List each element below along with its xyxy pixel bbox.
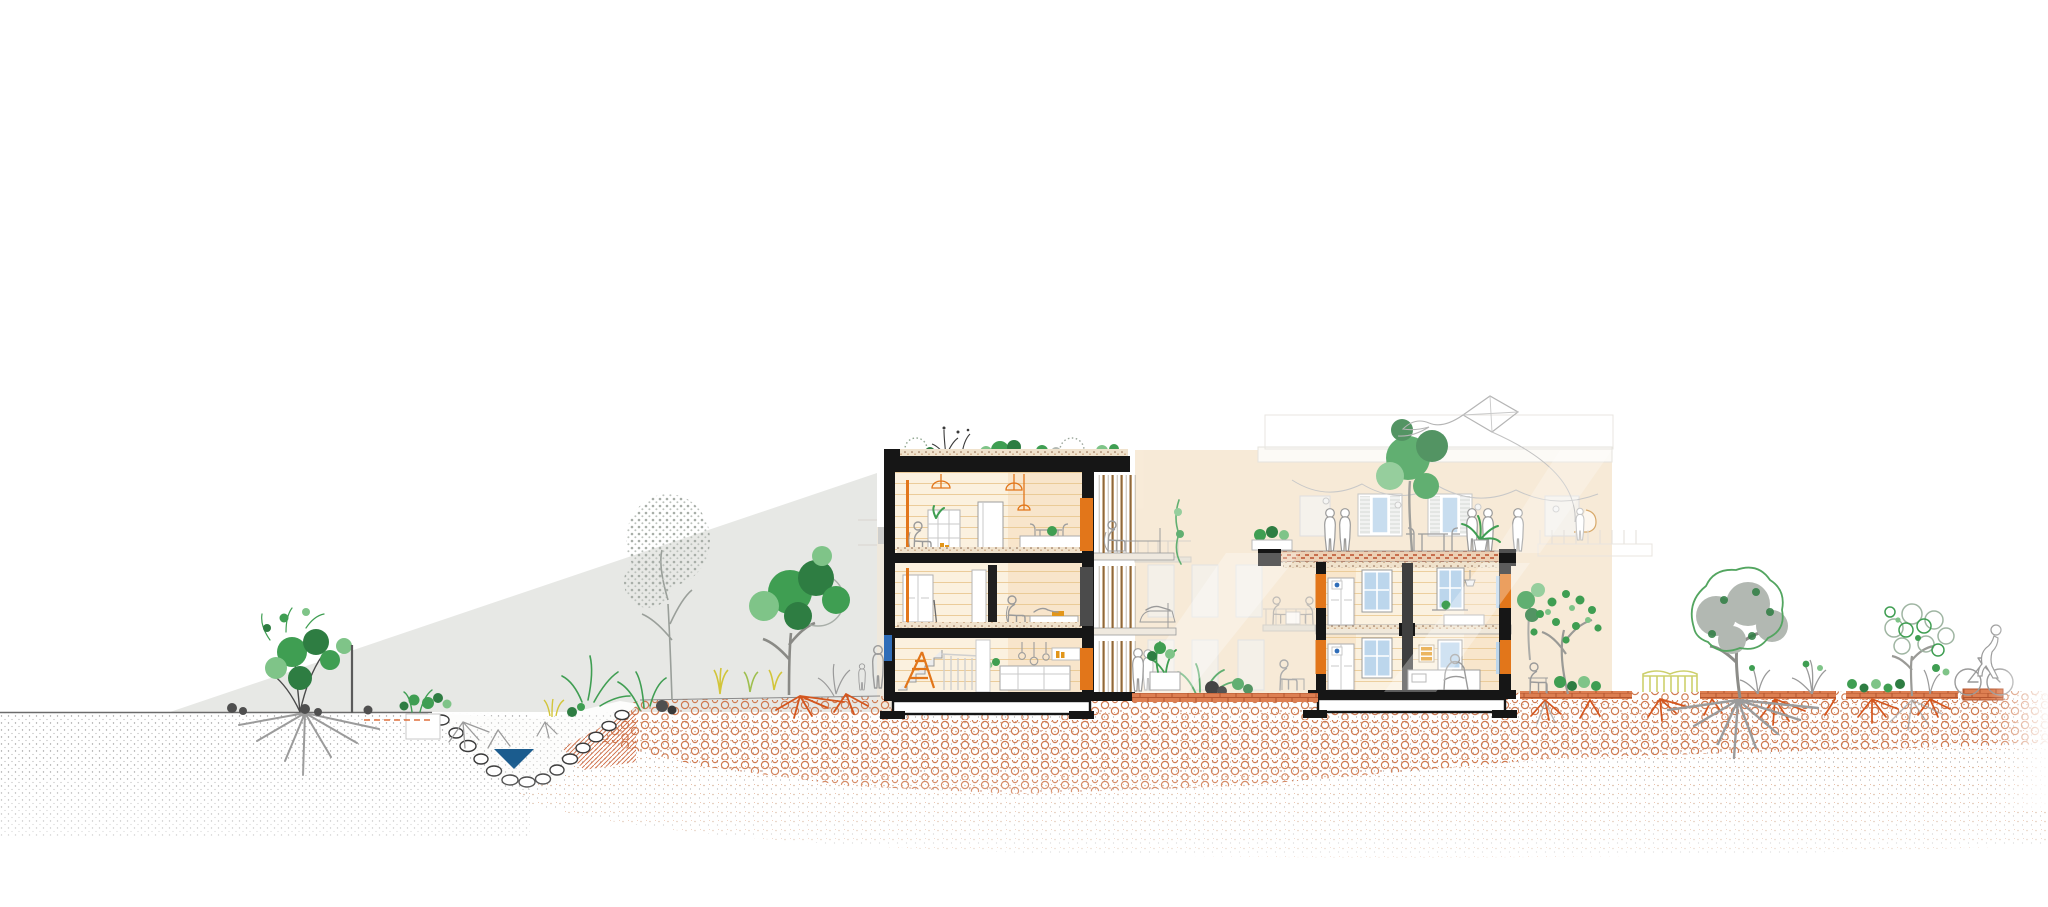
soil-fade (0, 762, 2048, 907)
courtyard-brick-walkway (1132, 693, 1318, 702)
ground-slab (884, 692, 1135, 701)
floor-slab-2 (884, 628, 1093, 638)
yellow-green-fence (1643, 671, 1697, 692)
blue-wall-unit (884, 635, 892, 661)
right-edge-fade (1990, 560, 2048, 810)
roof-slab (893, 456, 1130, 472)
section-drawing (0, 0, 2048, 907)
kitchen-island (1000, 666, 1070, 690)
balcony-louvers (1096, 475, 1138, 692)
roof-substrate (897, 449, 1128, 457)
architectural-section-canvas (0, 0, 2048, 907)
large-tree (1692, 568, 1788, 698)
pond-inlet-box (406, 714, 440, 739)
twiggy-shrubs (1740, 660, 1950, 694)
balcony-slab-1 (1093, 553, 1174, 560)
balcony-slab-2 (1093, 628, 1176, 635)
floor-slab-1 (884, 553, 1093, 563)
terrace-slab (1263, 551, 1515, 562)
